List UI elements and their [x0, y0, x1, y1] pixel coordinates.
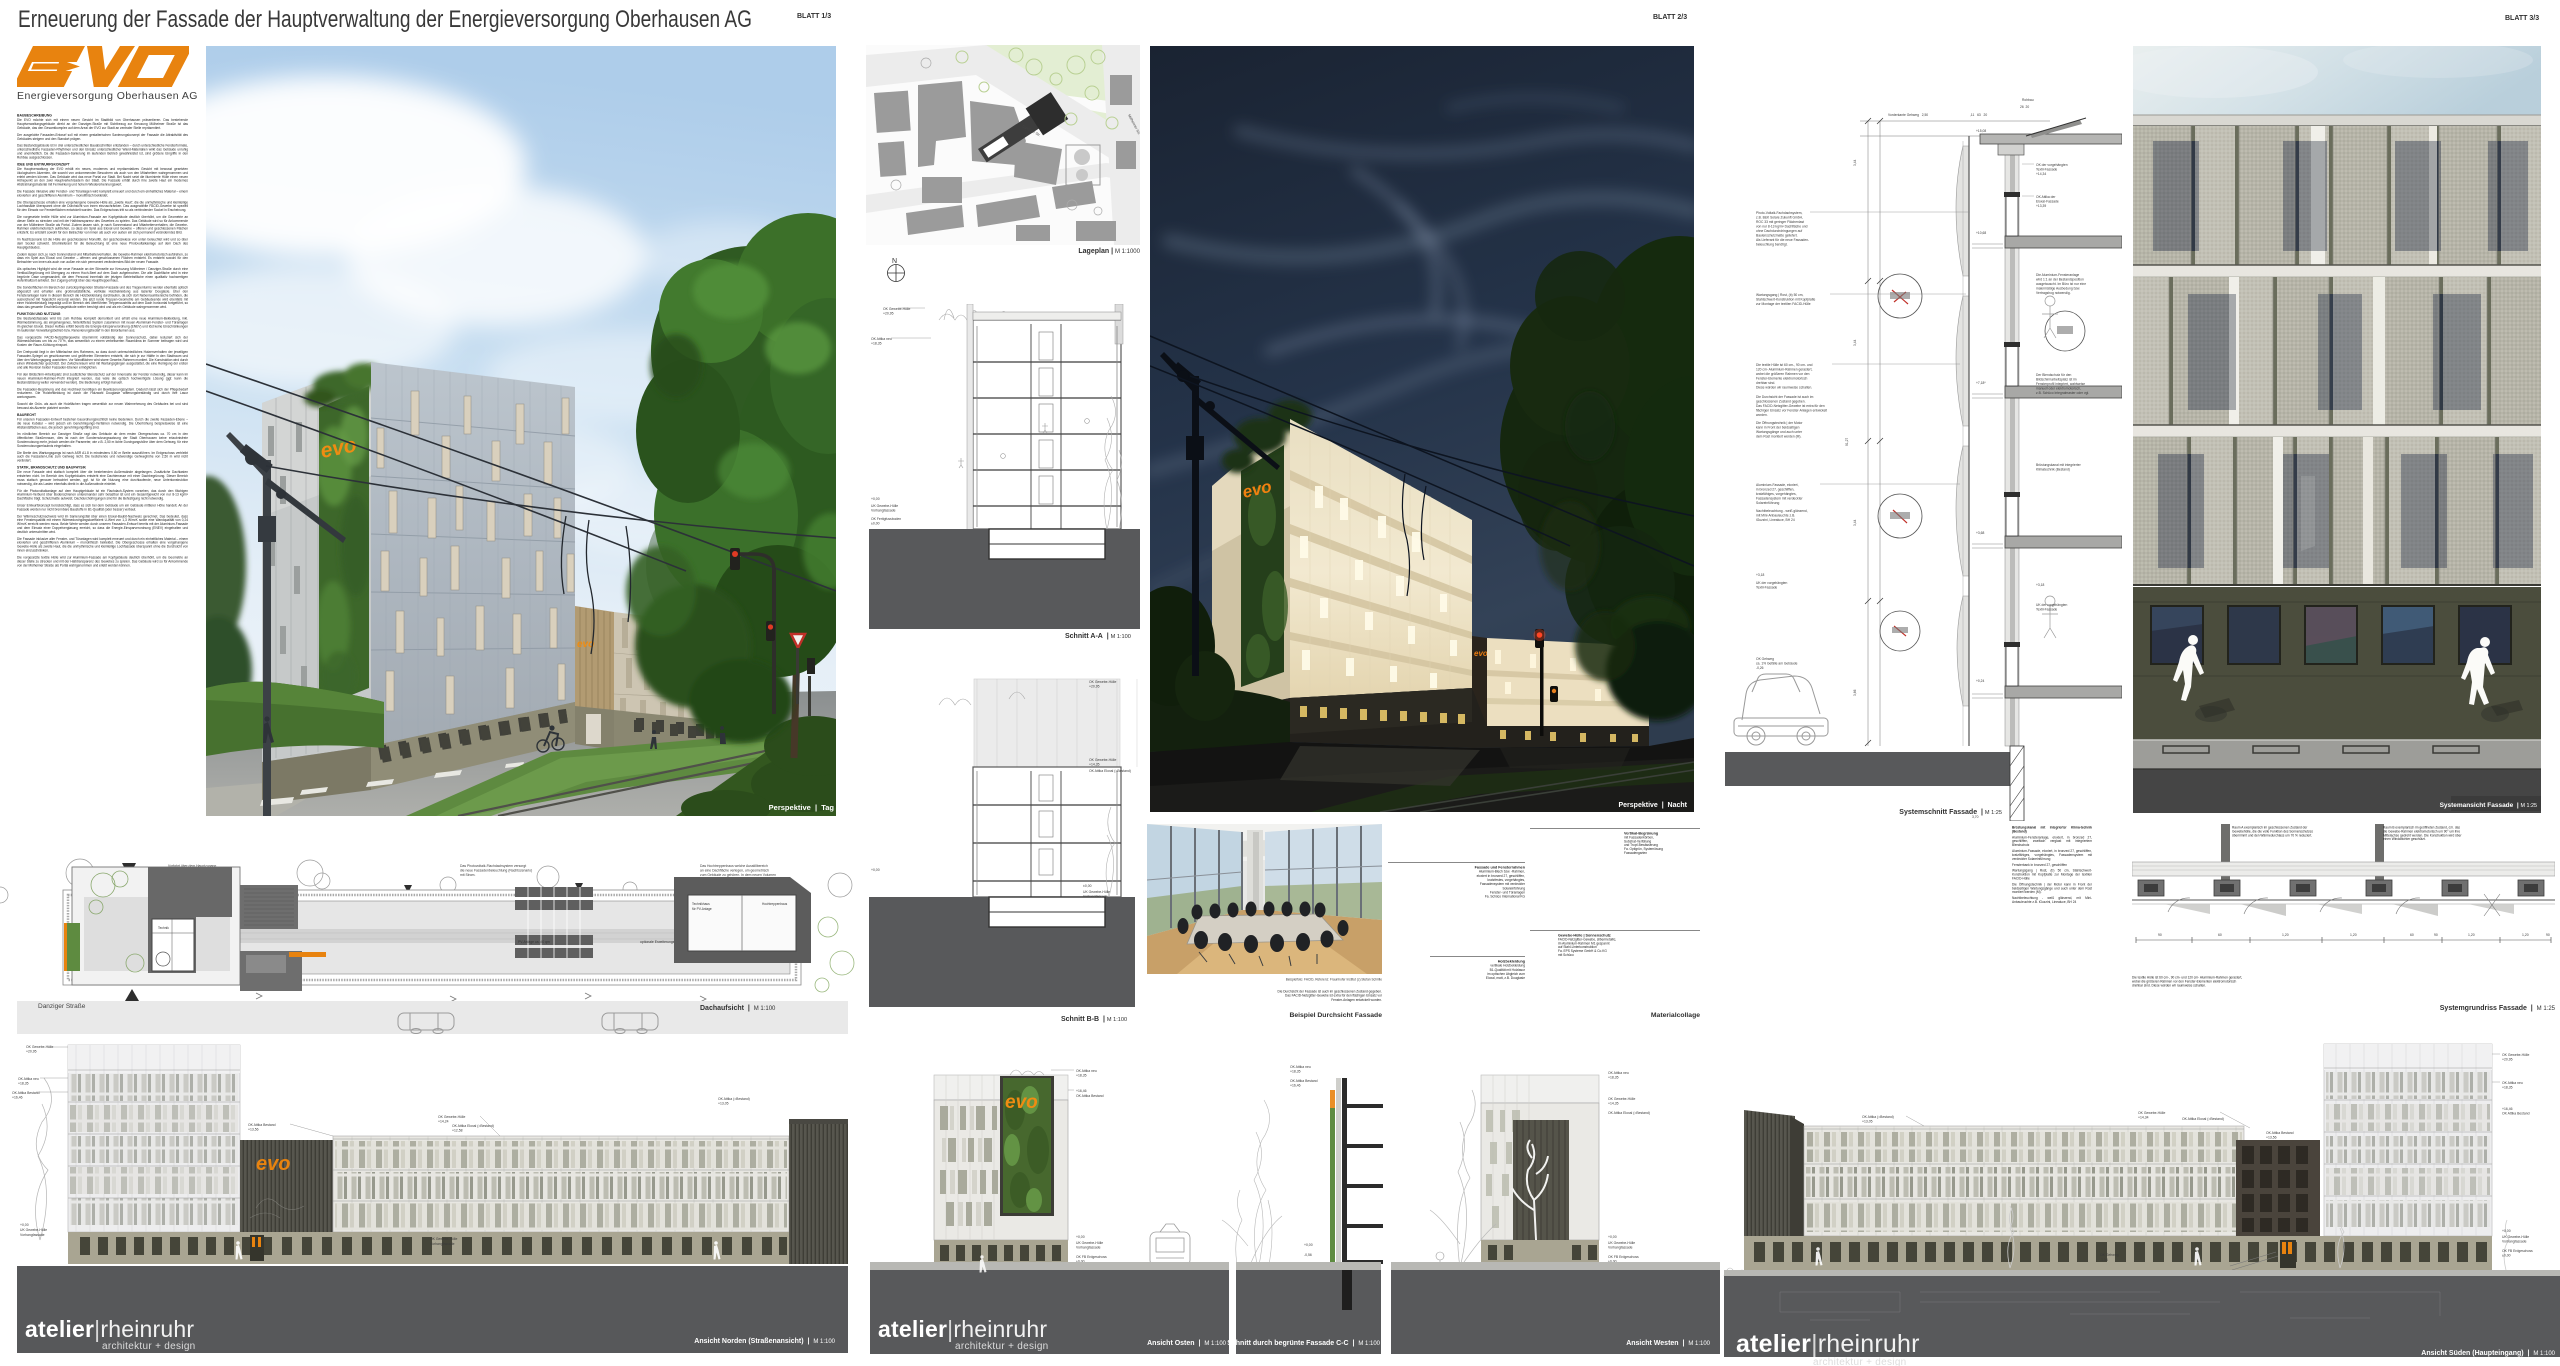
svg-text:Baulenschutzmatte geliefert.: Baulenschutzmatte geliefert.: [1756, 234, 1798, 238]
svg-text:ca. 1% Gefälle am Gebäude: ca. 1% Gefälle am Gebäude: [1756, 662, 1798, 666]
svg-text:Vorhangfassade: Vorhangfassade: [430, 1242, 455, 1246]
svg-text:60: 60: [2410, 933, 2414, 937]
svg-text:OK Gewebe-Hülle: OK Gewebe-Hülle: [2502, 1053, 2529, 1057]
svg-text:+18,35: +18,35: [1290, 1070, 1301, 1074]
svg-text:+3,18: +3,18: [2036, 583, 2045, 587]
svg-text:OK Fertigfussboden: OK Fertigfussboden: [871, 517, 901, 521]
svg-text:+16,46: +16,46: [1290, 1084, 1301, 1088]
svg-text:OK Gewebe-Hülle: OK Gewebe-Hülle: [1089, 680, 1116, 684]
svg-text:Perspektive | Tag: Perspektive | Tag: [769, 803, 835, 812]
svg-text:+16,46: +16,46: [2502, 1107, 2513, 1111]
svg-text:+0,00: +0,00: [20, 1223, 29, 1227]
svg-text:Die Öffnungstechnik | der Moto: Die Öffnungstechnik | der Motor: [1756, 421, 1803, 425]
svg-text:+18,35: +18,35: [1608, 1076, 1619, 1080]
svg-text:OK Attika Bestand: OK Attika Bestand: [2502, 1112, 2530, 1116]
svg-text:Diese würden wir raumweise sch: Diese würden wir raumweise schalten.: [1756, 386, 1812, 390]
svg-text:OK Attika neu: OK Attika neu: [871, 337, 892, 341]
svg-text:±0,00: ±0,00: [2502, 1254, 2511, 1258]
svg-text:+0,00: +0,00: [2502, 1229, 2511, 1233]
svg-text:+14,34: +14,34: [2036, 172, 2046, 176]
svg-text:flächigen Einsatz vor Fenster-: flächigen Einsatz vor Fenster-Anlagen en…: [1756, 409, 1827, 413]
svg-text:Textil-Fassade: Textil-Fassade: [2036, 608, 2057, 612]
svg-text:OK Attika Eloxal (=Bestand): OK Attika Eloxal (=Bestand): [1089, 769, 1131, 773]
svg-text:an eine Dachfläche verlegen, u: an eine Dachfläche verlegen, um geometri…: [700, 869, 769, 873]
svg-text:1,20: 1,20: [2282, 933, 2289, 937]
svg-text:Wartungsgang | Rost, (b) 50 cm: Wartungsgang | Rost, (b) 50 cm,: [1756, 293, 1804, 297]
svg-text:OK Attika Bestand: OK Attika Bestand: [2266, 1131, 2294, 1135]
svg-text:+13,56: +13,56: [248, 1128, 259, 1132]
svg-text:Schnitt B-B | M 1:100: Schnitt B-B | M 1:100: [1061, 1016, 1127, 1023]
svg-text:±0,00: ±0,00: [1083, 884, 1092, 888]
svg-text:+14,34: +14,34: [2138, 1116, 2149, 1120]
svg-text:Vorhangfassade: Vorhangfassade: [1076, 1246, 1101, 1250]
svg-text:+3,68: +3,68: [1976, 531, 1985, 535]
svg-text:+18,35: +18,35: [871, 342, 882, 346]
svg-text:90: 90: [2546, 933, 2550, 937]
svg-text:Vertragshog notwendig.: Vertragshog notwendig.: [2036, 291, 2071, 295]
svg-text:+18,35: +18,35: [1076, 1074, 1087, 1078]
svg-text:Solareinführung: Solareinführung: [1756, 501, 1779, 505]
svg-text:±0,00: ±0,00: [871, 522, 880, 526]
svg-text:PV-Anlage ca. 40 qm: PV-Anlage ca. 40 qm: [518, 940, 550, 944]
svg-text:zur Montage der textilen FACID: zur Montage der textilen FACID-Hülle: [1756, 302, 1811, 306]
svg-text:-1,14: -1,14: [2100, 1258, 2108, 1262]
svg-text:26 20: 26 20: [2020, 105, 2029, 109]
svg-text:dem Rost montiert werden (M).: dem Rost montiert werden (M).: [1756, 435, 1802, 439]
svg-text:90: 90: [2158, 933, 2162, 937]
svg-text:Bildschirmarbeitsplatz ist im: Bildschirmarbeitsplatz ist im: [2036, 378, 2077, 382]
svg-text:+13,05: +13,05: [718, 1102, 729, 1106]
svg-text:OK Gehweg: OK Gehweg: [1756, 657, 1774, 661]
svg-text:3,44: 3,44: [1853, 339, 1857, 346]
svg-text:Textil-Fassade: Textil-Fassade: [2036, 168, 2057, 172]
svg-text:z.B. Schüco Integralmaster ode: z.B. Schüco Integralmaster oder vgl.: [2036, 391, 2089, 395]
svg-text:60: 60: [2218, 933, 2222, 937]
svg-text:+15,08: +15,08: [1976, 129, 1986, 133]
svg-text:Vorderkante Gehweg 2,50: Vorderkante Gehweg 2,50: [1888, 113, 1928, 117]
svg-text:beleuchtung benötigt.: beleuchtung benötigt.: [1756, 243, 1788, 247]
svg-text:Vorhangfassade: Vorhangfassade: [1608, 1246, 1633, 1250]
svg-text:Fenster-Elemente elektromotori: Fenster-Elemente elektromotorisch: [1756, 377, 1807, 381]
svg-text:UK Gewebe-Hülle: UK Gewebe-Hülle: [2502, 1235, 2529, 1239]
svg-text:manuell oder elektromotorisch,: manuell oder elektromotorisch,: [2036, 387, 2081, 391]
svg-text:3,44: 3,44: [1853, 159, 1857, 166]
svg-text:Die Aluminium-Fensteranlage: Die Aluminium-Fensteranlage: [2036, 273, 2079, 277]
svg-text:+13,39: +13,39: [2036, 204, 2046, 208]
svg-text:malermäßige Ausbedung bzw.: malermäßige Ausbedung bzw.: [2036, 287, 2080, 291]
svg-text:1,20: 1,20: [2468, 933, 2475, 937]
svg-text:von nur 8-13 kg/m² Dachfläche: von nur 8-13 kg/m² Dachfläche und: [1756, 225, 1808, 229]
svg-text:Das Photovoltaik-Flachdachsyst: Das Photovoltaik-Flachdachsystem versorg…: [460, 864, 526, 868]
svg-text:ohne Dachdurchdringungen auf: ohne Dachdurchdringungen auf: [1756, 229, 1802, 233]
svg-text:Fensterprofil integriert, wahl: Fensterprofil integriert, wahlweise: [2036, 382, 2085, 386]
svg-text:Das Hochtreppenhaus welche Aus: Das Hochtreppenhaus welche Ausstillberei…: [700, 864, 768, 868]
svg-text:Hochtreppenhaus: Hochtreppenhaus: [762, 902, 788, 906]
svg-text:OK Attika (=Bestand): OK Attika (=Bestand): [718, 1097, 750, 1101]
svg-text:geschlossenen Zustand gegeben.: geschlossenen Zustand gegeben.: [1756, 400, 1806, 404]
svg-text:Nachtbeleuchtung - weiß glänze: Nachtbeleuchtung - weiß glänzend,: [1756, 509, 1808, 513]
svg-text:OK FB Erdgeschoss: OK FB Erdgeschoss: [2502, 1249, 2533, 1253]
svg-text:drehbar sind.: drehbar sind.: [1756, 381, 1775, 385]
svg-text:Schnitt A-A | M 1:100: Schnitt A-A | M 1:100: [1065, 633, 1131, 640]
svg-text:Das FACID-Netzgitter-Gewebe is: Das FACID-Netzgitter-Gewebe ist extra fü…: [1756, 404, 1825, 408]
svg-text:+3,18: +3,18: [1756, 573, 1765, 577]
svg-text:OK Gewebe-Hülle: OK Gewebe-Hülle: [883, 307, 910, 311]
svg-text:Perspektive | Nacht: Perspektive | Nacht: [1619, 802, 1688, 809]
svg-text:120 cm- Aluminium-Rahmen geras: 120 cm- Aluminium-Rahmen gerastert,: [1756, 368, 1813, 372]
svg-text:OK Attika neu: OK Attika neu: [1608, 1071, 1629, 1075]
svg-text:z.B. B&K Solare Zukunft GmbH,: z.B. B&K Solare Zukunft GmbH,: [1756, 216, 1803, 220]
svg-text:Systemansicht Fassade | M 1:2: Systemansicht Fassade | M 1:25: [2440, 802, 2537, 809]
svg-text:OK Attika Bestand: OK Attika Bestand: [1076, 1094, 1104, 1098]
svg-text:Textil-Fassade: Textil-Fassade: [1756, 586, 1777, 590]
svg-text:OK Gewebe-Hülle: OK Gewebe-Hülle: [1089, 758, 1116, 762]
svg-text:+20,95: +20,95: [26, 1050, 37, 1054]
svg-text:OK FB Erdgeschoss: OK FB Erdgeschoss: [1076, 1255, 1107, 1259]
svg-text:1,20: 1,20: [2522, 933, 2529, 937]
svg-text:+7,18*: +7,18*: [1976, 381, 1986, 385]
svg-text:zum Gebäude zu gehören. In dem: zum Gebäude zu gehören. In dem neuen Vol…: [700, 873, 776, 877]
svg-text:+18,35: +18,35: [2502, 1086, 2513, 1090]
svg-text:Der Blendschutz für den: Der Blendschutz für den: [2036, 373, 2072, 377]
svg-text:mit Strom.: mit Strom.: [460, 873, 476, 877]
svg-text:,11 63 20: ,11 63 20: [1970, 113, 1987, 117]
svg-text:+20,95: +20,95: [883, 312, 894, 316]
svg-text:OK Attika Eloxal (=Bestand): OK Attika Eloxal (=Bestand): [1608, 1111, 1650, 1115]
svg-text:wobei die größeren Rahmen vor: wobei die größeren Rahmen vor den: [1756, 372, 1810, 376]
svg-text:UK Gewebe-Hülle: UK Gewebe-Hülle: [20, 1228, 47, 1232]
svg-text:Wartungsgänge und auch unter: Wartungsgänge und auch unter: [1756, 430, 1803, 434]
svg-text:+14,35: +14,35: [1089, 763, 1100, 767]
svg-text:Vorhangfassade: Vorhangfassade: [2502, 1240, 2527, 1244]
svg-text:Die textile Hülle ist 60 cm-,: Die textile Hülle ist 60 cm-, 90 cm- und: [1756, 363, 1813, 367]
svg-text:OK Gehweg: OK Gehweg: [2100, 1253, 2119, 1257]
svg-text:kann in Front der beidseitigen: kann in Front der beidseitigen: [1756, 426, 1800, 430]
svg-text:Klimatechnik (Bestand): Klimatechnik (Bestand): [2036, 468, 2070, 472]
svg-text:OK Gewebe-Hülle: OK Gewebe-Hülle: [1608, 1097, 1635, 1101]
svg-text:+20,95: +20,95: [2502, 1058, 2513, 1062]
svg-text:Photo-Voltaik-Fachdachsystem,: Photo-Voltaik-Fachdachsystem,: [1756, 211, 1802, 215]
svg-text:OK Gewebe-Hülle: OK Gewebe-Hülle: [430, 1237, 457, 1241]
svg-text:Stahlschwert-Konstruktion mit: Stahlschwert-Konstruktion mit Kopfplatte: [1756, 298, 1816, 302]
svg-text:91,27: 91,27: [1845, 438, 1849, 446]
svg-text:+13,56: +13,56: [2266, 1136, 2277, 1140]
svg-text:OK Attika neu: OK Attika neu: [2502, 1081, 2523, 1085]
svg-text:+14,35: +14,35: [1608, 1102, 1619, 1106]
svg-text:Als Lieferant für die neue Fas: Als Lieferant für die neue Fassaden-: [1756, 238, 1809, 242]
svg-text:evo: evo: [1005, 1092, 1038, 1113]
svg-text:wird 1:1 an der Bestandspositi: wird 1:1 an der Bestandsposition: [2036, 278, 2084, 282]
svg-text:die neue Fassadenbeleuchtung (: die neue Fassadenbeleuchtung (Nachtszena…: [460, 869, 532, 873]
svg-text:OK Attika Eloxal (=Bestand): OK Attika Eloxal (=Bestand): [2182, 1117, 2224, 1121]
svg-text:UK der vorgehängten: UK der vorgehängten: [1756, 581, 1788, 585]
svg-text:evo: evo: [256, 1153, 290, 1175]
svg-text:Brüstungskanal mit integrierte: Brüstungskanal mit integrierter: [2036, 463, 2082, 467]
svg-text:in bronzed 27, geschliffen,: in bronzed 27, geschliffen,: [1756, 488, 1795, 492]
svg-text:+0,00: +0,00: [871, 868, 880, 872]
svg-text:+10,68: +10,68: [1976, 231, 1986, 235]
svg-text:Rohbau: Rohbau: [2022, 98, 2034, 102]
svg-text:für PV-Anlage: für PV-Anlage: [692, 907, 712, 911]
svg-text:+16,46: +16,46: [1076, 1089, 1087, 1093]
svg-text:OK FB Erdgeschoss: OK FB Erdgeschoss: [1608, 1255, 1639, 1259]
svg-text:+13,05: +13,05: [1862, 1120, 1873, 1124]
svg-text:OK der vorgehängten: OK der vorgehängten: [2036, 163, 2068, 167]
svg-text:+16,46: +16,46: [12, 1096, 23, 1100]
svg-text:+0,24: +0,24: [1976, 679, 1985, 683]
svg-text:Vorhangfassade: Vorhangfassade: [20, 1233, 45, 1237]
svg-text:Systemschnitt Fassade | M 1:2: Systemschnitt Fassade | M 1:25: [1899, 809, 2002, 816]
svg-text:+14,24: +14,24: [438, 1120, 449, 1124]
svg-text:3,44: 3,44: [1853, 519, 1857, 526]
svg-text:90: 90: [2434, 933, 2438, 937]
svg-text:OK Gewebe-Hülle: OK Gewebe-Hülle: [438, 1115, 465, 1119]
svg-text:UK Gewebe-Hülle: UK Gewebe-Hülle: [871, 504, 898, 508]
svg-text:OK Attika neu: OK Attika neu: [18, 1077, 39, 1081]
svg-text:kratzfähiges, vorgehängtes,: kratzfähiges, vorgehängtes,: [1756, 492, 1797, 496]
svg-text:N: N: [892, 258, 897, 265]
svg-text:+0,00: +0,00: [1076, 1235, 1085, 1239]
svg-text:UK der vorgehängten: UK der vorgehängten: [2036, 603, 2068, 607]
svg-text:ausgetauscht. Im Büro ist nur: ausgetauscht. Im Büro ist nur eine: [2036, 282, 2086, 286]
svg-text:+20,95: +20,95: [1089, 685, 1100, 689]
svg-text:+0,00: +0,00: [1304, 1243, 1313, 1247]
svg-text:+0,00: +0,00: [871, 497, 880, 501]
svg-text:UK Gewebe-Hülle: UK Gewebe-Hülle: [1076, 1241, 1103, 1245]
svg-text:-0,26: -0,26: [1756, 666, 1764, 670]
svg-text:Fassadensystem mit verdeckter: Fassadensystem mit verdeckter: [1756, 497, 1803, 501]
svg-text:Eloxal-Fassade: Eloxal-Fassade: [2036, 200, 2059, 204]
svg-text:UK Gewebe-Hülle: UK Gewebe-Hülle: [1608, 1241, 1635, 1245]
svg-text:OK Attika der: OK Attika der: [2036, 195, 2056, 199]
svg-text:OK Attika neu: OK Attika neu: [1076, 1069, 1097, 1073]
svg-text:UK Gewebe-Hülle: UK Gewebe-Hülle: [1083, 890, 1110, 894]
svg-text:+12,58: +12,58: [452, 1129, 463, 1133]
svg-text:Technik: Technik: [158, 926, 169, 930]
svg-text:1,20: 1,20: [2350, 933, 2357, 937]
svg-text:worden.: worden.: [1756, 413, 1768, 417]
svg-text:ROC 33 mit geringer Flächenlas: ROC 33 mit geringer Flächenlast: [1756, 220, 1804, 224]
svg-text:+18,35: +18,35: [18, 1082, 29, 1086]
svg-text:3,66: 3,66: [1853, 689, 1857, 696]
svg-text:OK Attika Bestand: OK Attika Bestand: [248, 1123, 276, 1127]
svg-text:evo: evo: [1474, 649, 1488, 658]
svg-text:Aluminium-Fassade, eloxiert,: Aluminium-Fassade, eloxiert,: [1756, 483, 1799, 487]
svg-text:OK Attika Bestand: OK Attika Bestand: [12, 1091, 40, 1095]
svg-text:OK Attika neu: OK Attika neu: [1290, 1065, 1311, 1069]
svg-text:OK Gewebe-Hülle: OK Gewebe-Hülle: [2138, 1111, 2165, 1115]
svg-text:Die Durchsicht der Fassade ist: Die Durchsicht der Fassade ist auch im: [1756, 395, 1814, 399]
svg-text:+0,00: +0,00: [1608, 1235, 1617, 1239]
svg-text:OK Attika Bestand: OK Attika Bestand: [1290, 1079, 1318, 1083]
svg-text:Technikhaus: Technikhaus: [692, 902, 710, 906]
svg-text:OK Attika Eloxal (=Bestand): OK Attika Eloxal (=Bestand): [452, 1124, 494, 1128]
svg-text:mit Mini-Anbauleuchte z.B.: mit Mini-Anbauleuchte z.B.: [1756, 514, 1795, 518]
svg-text:-0,56: -0,56: [1304, 1253, 1312, 1257]
svg-text:OK Attika (=Bestand): OK Attika (=Bestand): [1862, 1115, 1894, 1119]
svg-text:Vorhangfassade: Vorhangfassade: [871, 509, 896, 513]
svg-text:iGuzzini, Linealuce, BH 24: iGuzzini, Linealuce, BH 24: [1756, 518, 1795, 522]
